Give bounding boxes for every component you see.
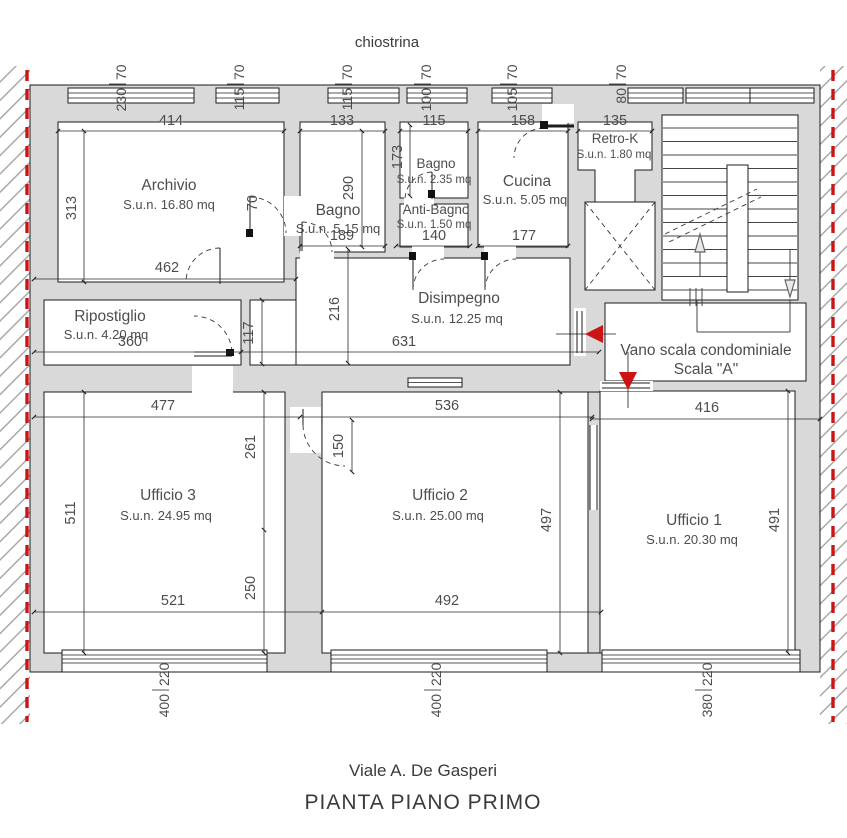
door-gap-cucina-top [542,104,574,123]
window [492,88,552,103]
window-dim: 70 [504,64,520,80]
window-dim: 105 [504,88,520,112]
dimension-label: 497 [539,508,555,532]
plan-title: PIANTA PIANO PRIMO [305,791,542,814]
dimension-label: 177 [512,228,536,244]
floor-plan-drawing: 414 133 115 158 135 313 290 173 70 189 1… [0,0,847,838]
door-gap-cucina [484,246,516,259]
room-name: Scala "A" [674,361,738,378]
dimension-label: 115 [422,113,445,129]
room-name: Anti-Bagno [403,202,470,217]
room-area: S.u.n. 25.00 mq [392,508,484,523]
dimension-label: 491 [767,508,783,532]
dimension-label: 492 [435,593,459,609]
room-name: Ufficio 2 [412,487,468,504]
dimension-label: 158 [511,113,535,129]
door-gap-bagno1 [300,251,334,259]
room-area: S.u.n. 12.25 mq [411,311,503,326]
room-name: Bagno [316,202,361,219]
window-dim: 80 [613,88,629,104]
elevator-shaft [585,202,655,290]
door-gap-landing [574,308,586,356]
room-area: S.u.n. 4.20 mq [64,327,149,342]
dimension-label: 462 [155,260,179,276]
window [628,88,683,103]
dimension-label: 135 [603,113,627,129]
window-dim: 70 [339,64,355,80]
dimension-label: 70 [245,195,261,211]
window-dim: 220 [428,662,444,686]
room-area: S.u.n. 16.80 mq [123,197,215,212]
door-gap-ufficio2 [290,407,321,453]
window-dim: 70 [113,64,129,80]
window-dim: 100 [418,88,434,112]
room-name: Disimpegno [418,290,500,307]
door-gap-antibagno [412,246,444,259]
window-dim: 400 [428,694,444,718]
window-dim: 70 [613,64,629,80]
room-name: Ufficio 3 [140,487,196,504]
room-name: Bagno [416,156,455,171]
room-area: S.u.n. 20.30 mq [646,532,738,547]
room-area: S.u.n. 5.15 mq [296,221,381,236]
room-area: S.u.n. 2.35 mq [397,174,472,186]
window [407,88,467,103]
dimension-label: 536 [435,398,459,414]
top-windows [68,88,814,103]
room-area: S.u.n. 1.80 mq [577,149,652,161]
dimension-label: 511 [63,501,79,524]
window-dim: 220 [156,662,172,686]
dimension-label: 150 [331,434,347,458]
room-name: Cucina [503,173,552,190]
dimension-label: 416 [695,400,719,416]
room-name: Retro-K [592,131,639,146]
room-area: S.u.n. 1.50 mq [397,219,472,231]
dimension-label: 290 [341,176,357,200]
room-name: Archivio [141,177,196,194]
window-dim: 230 [113,88,129,112]
dimension-label: 261 [243,435,259,459]
dimension-label: 313 [64,196,80,220]
dimension-label: 521 [161,593,185,609]
dimension-label: 173 [390,145,406,169]
window-dim: 70 [231,64,247,80]
window-dim: 220 [699,662,715,686]
room-area: S.u.n. 24.95 mq [120,508,212,523]
window-stairwell [686,88,814,103]
window-dim: 70 [418,64,434,80]
room-name: Ufficio 1 [666,512,722,529]
dimension-label: 631 [392,334,416,350]
window-dim: 400 [156,694,172,718]
room-area: S.u.n. 5.05 mq [483,192,568,207]
room-name: Vano scala condominiale [620,342,791,359]
stair-newel [727,165,748,292]
door-gap-ufficio3 [192,366,233,393]
dimension-label: 250 [243,576,259,600]
street-label: Viale A. De Gasperi [349,761,497,780]
window-dim: 380 [699,694,715,718]
dimension-label: 117 [241,321,257,344]
window-dim: 115 [231,88,247,111]
window-dim: 115 [339,88,355,111]
room-name: Ripostiglio [74,308,146,325]
window [68,88,194,103]
floor-plan-page: 414 133 115 158 135 313 290 173 70 189 1… [0,0,847,838]
courtyard-label: chiostrina [355,34,420,51]
dimension-label: 133 [330,113,354,129]
dimension-label: 414 [159,113,183,129]
window [216,88,279,103]
dimension-label: 477 [151,398,175,414]
dimension-label: 216 [327,297,343,321]
